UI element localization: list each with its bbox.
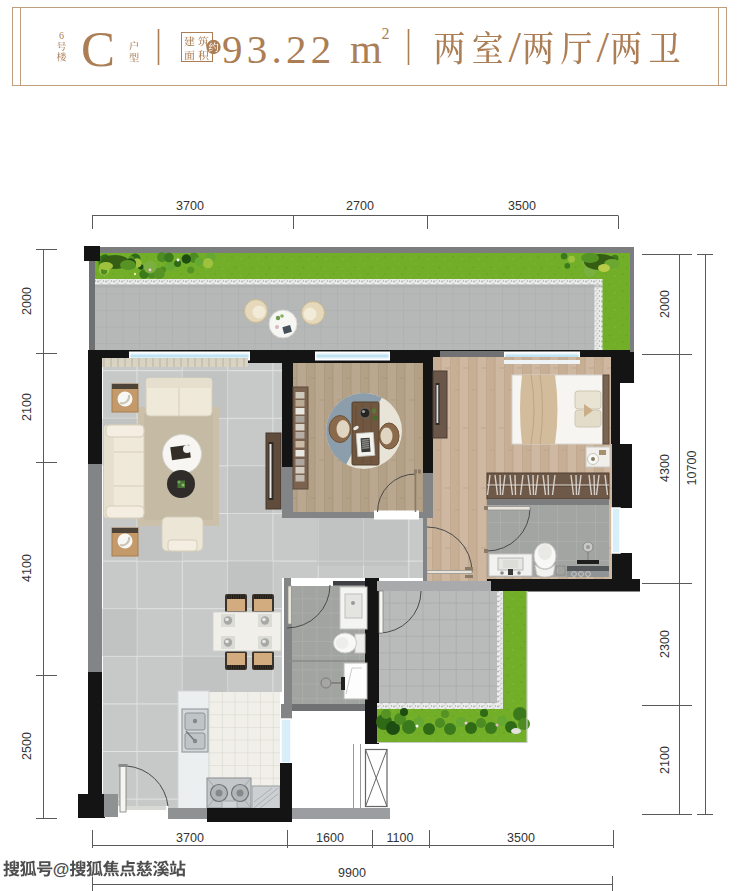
svg-text:1100: 1100 bbox=[387, 831, 414, 845]
svg-text:2300: 2300 bbox=[658, 630, 672, 658]
svg-text:2100: 2100 bbox=[658, 746, 672, 774]
svg-text:2700: 2700 bbox=[346, 199, 374, 213]
svg-text:4100: 4100 bbox=[20, 554, 34, 582]
svg-text:2000: 2000 bbox=[20, 287, 34, 315]
svg-text:2500: 2500 bbox=[20, 732, 34, 760]
svg-text:3700: 3700 bbox=[176, 831, 204, 845]
svg-text:2: 2 bbox=[382, 25, 390, 42]
svg-text:@: @ bbox=[53, 860, 70, 879]
svg-text:3500: 3500 bbox=[507, 831, 535, 845]
svg-text:3700: 3700 bbox=[176, 199, 204, 213]
svg-text:4300: 4300 bbox=[658, 454, 672, 482]
svg-text:C: C bbox=[81, 21, 115, 77]
svg-text:3500: 3500 bbox=[508, 199, 536, 213]
svg-text:1600: 1600 bbox=[316, 831, 344, 845]
svg-text:6: 6 bbox=[59, 30, 64, 41]
svg-text:/: / bbox=[597, 22, 610, 72]
svg-text:10700: 10700 bbox=[685, 451, 699, 486]
svg-text:93.22 m: 93.22 m bbox=[222, 26, 382, 72]
svg-text:2100: 2100 bbox=[20, 393, 34, 421]
svg-text:2000: 2000 bbox=[658, 290, 672, 318]
svg-text:/: / bbox=[509, 22, 522, 72]
svg-text:9900: 9900 bbox=[338, 866, 366, 880]
